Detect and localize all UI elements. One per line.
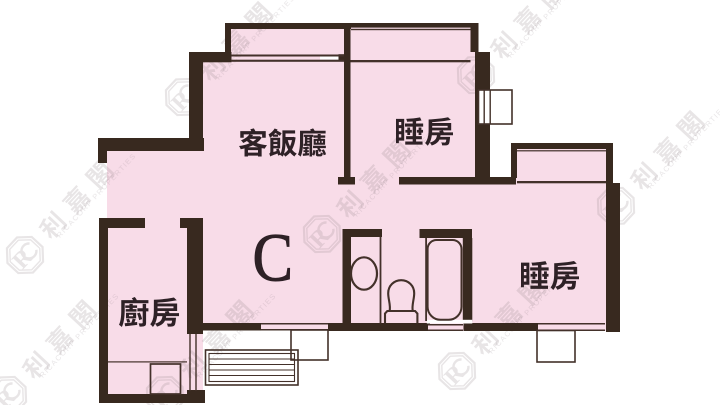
svg-text:C: C: [253, 220, 293, 297]
